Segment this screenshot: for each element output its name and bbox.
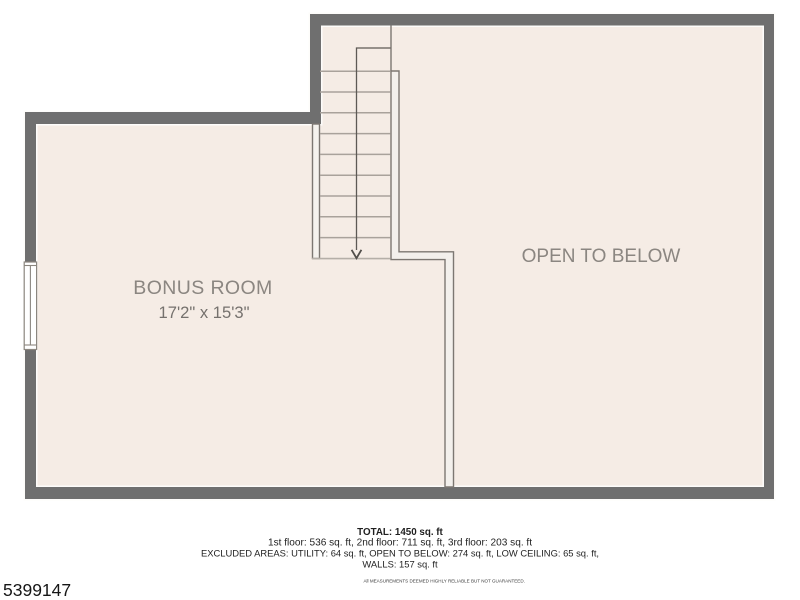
- svg-text:17'2" x 15'3": 17'2" x 15'3": [158, 303, 249, 322]
- svg-text:All MEASUREMENTS DEEMED HIGHLY: All MEASUREMENTS DEEMED HIGHLY RELIABLE …: [364, 579, 525, 584]
- svg-text:TOTAL: 1450 sq. ft: TOTAL: 1450 sq. ft: [357, 527, 443, 538]
- svg-text:OPEN TO BELOW: OPEN TO BELOW: [522, 246, 681, 267]
- svg-text:5399147: 5399147: [3, 580, 71, 600]
- svg-text:EXCLUDED AREAS: UTILITY: 64 sq: EXCLUDED AREAS: UTILITY: 64 sq. ft, OPEN…: [201, 547, 599, 558]
- svg-text:BONUS ROOM: BONUS ROOM: [133, 277, 272, 299]
- svg-text:WALLS: 157 sq. ft: WALLS: 157 sq. ft: [362, 559, 438, 570]
